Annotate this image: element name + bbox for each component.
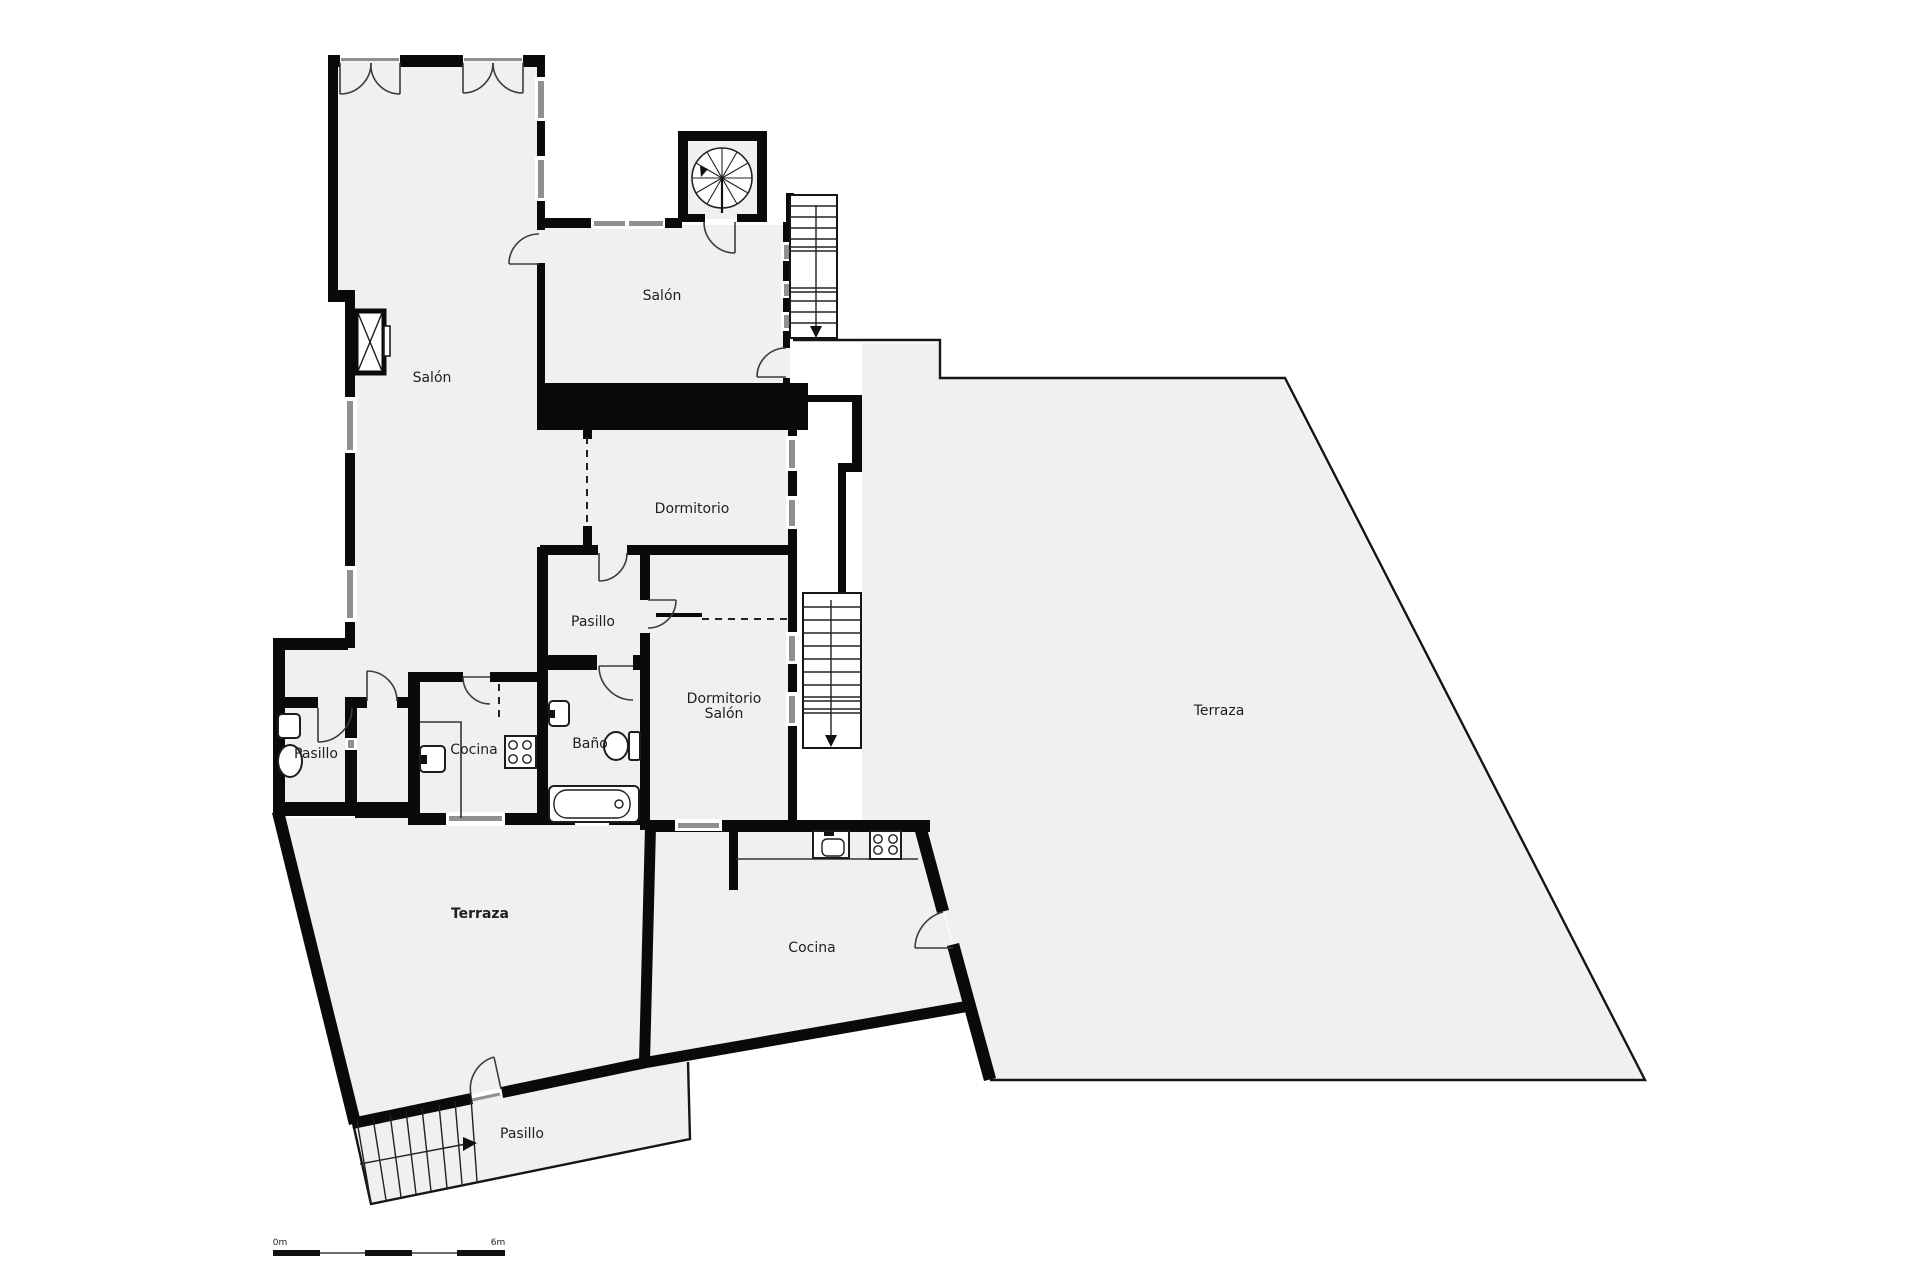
window [786, 436, 799, 471]
label-bano: Baño [572, 736, 608, 752]
label-terraza-lower: Terraza [451, 906, 509, 922]
label-cocina: Cocina [450, 742, 497, 758]
floor-plan-canvas: 0m 6m Salón Salón Dormitorio Pasillo Dor… [0, 0, 1920, 1280]
label-dormitorio-salon-line1: Dormitorio [687, 691, 762, 707]
label-salon-upper: Salón [643, 288, 682, 304]
window [786, 632, 799, 664]
window [535, 77, 547, 121]
label-pasillo-wc: Pasillo [294, 746, 338, 762]
scale-bar: 0m 6m [273, 1238, 506, 1256]
toilet-icon [604, 732, 640, 760]
window [535, 156, 547, 201]
window [786, 692, 799, 726]
floor-plan: 0m 6m Salón Salón Dormitorio Pasillo Dor… [0, 0, 1920, 1280]
scale-end-label: 6m [491, 1238, 506, 1248]
label-pasillo-mid: Pasillo [571, 614, 615, 630]
sink-icon [420, 746, 445, 772]
label-dormitorio-salon-line2: Salón [705, 706, 744, 722]
room-salon-main [280, 60, 543, 700]
label-terraza-main: Terraza [1193, 703, 1245, 719]
window [675, 819, 722, 831]
room-dormitorio-salon [646, 553, 797, 826]
sink-icon [549, 701, 569, 726]
staircase-upper-right [790, 195, 837, 338]
stove-icon [870, 831, 901, 859]
scale-start-label: 0m [273, 1238, 288, 1248]
chimney-icon [356, 311, 390, 373]
structural-band [542, 383, 808, 430]
sink-icon [813, 831, 849, 858]
staircase-mid-right [803, 593, 861, 748]
room-salon-main-nook [540, 428, 588, 548]
room-salon-upper [543, 225, 790, 385]
room-fills [277, 60, 1643, 1205]
window [591, 217, 665, 229]
stove-icon [505, 736, 536, 768]
window [446, 812, 505, 826]
window [343, 397, 357, 453]
room-terraza-main [862, 343, 1643, 1079]
label-dormitorio: Dormitorio [655, 501, 730, 517]
window [786, 496, 799, 529]
label-pasillo-entry: Pasillo [500, 1126, 544, 1142]
bathtub-icon [549, 786, 639, 822]
label-cocina-lower: Cocina [788, 940, 835, 956]
label-salon-main: Salón [413, 370, 452, 386]
window [345, 738, 357, 750]
room-vestibule [357, 700, 411, 818]
window [343, 566, 357, 622]
room-dormitorio [588, 428, 797, 553]
